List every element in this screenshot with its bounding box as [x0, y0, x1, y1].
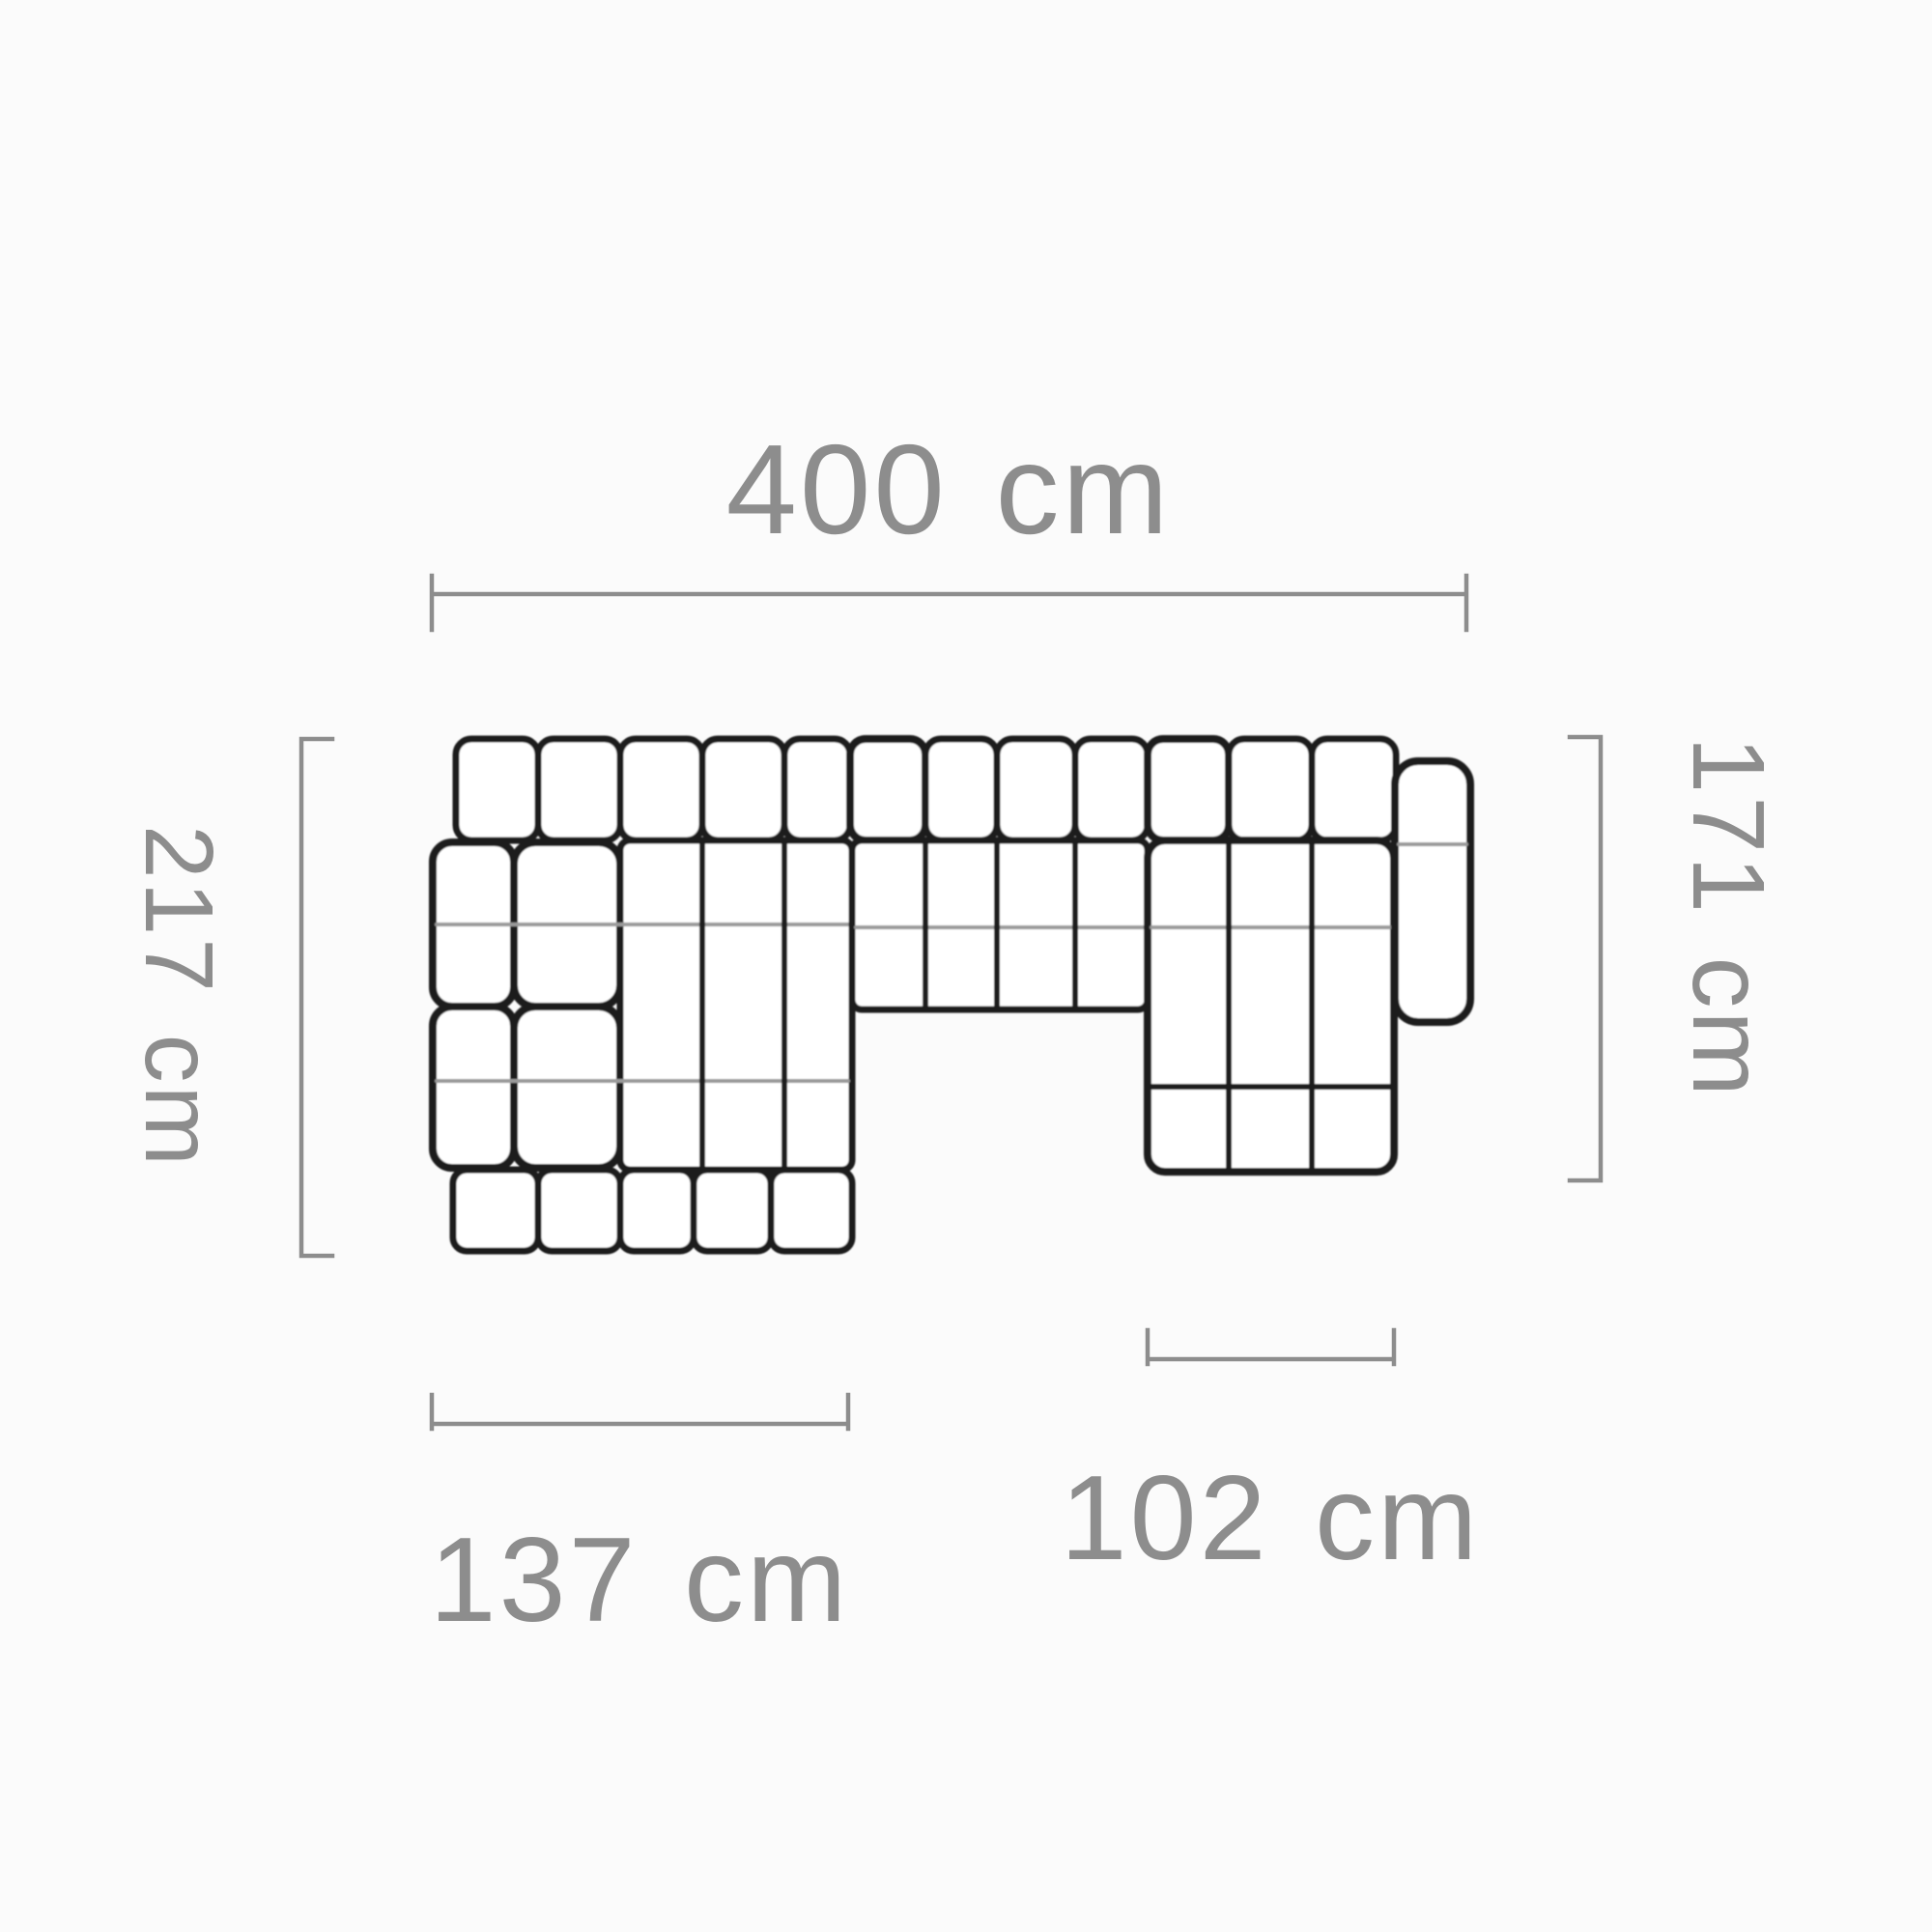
dim-left-depth-line	[301, 739, 332, 1256]
dim-left-depth-label: 217 cm	[125, 825, 233, 1169]
dim-left-chaise-line	[432, 1395, 848, 1429]
left-armrest-pillow	[433, 1007, 514, 1168]
back-cushion	[456, 739, 538, 840]
sofa-outline	[433, 739, 1470, 1251]
back-cushion-row	[456, 739, 1396, 840]
dim-left-depth: 217 cm	[125, 739, 332, 1256]
dim-total-width-label: 400 cm	[726, 418, 1172, 560]
back-cushion	[538, 739, 620, 840]
dim-right-chaise-width: 102 cm	[1061, 1330, 1481, 1585]
sofa-dimension-diagram: 400 cm 217 cm 171 cm 137 cm 102 cm	[0, 0, 1932, 1932]
back-cushion	[850, 739, 925, 840]
right-armrest	[1395, 761, 1470, 1022]
left-chaise	[433, 840, 852, 1251]
dim-right-depth: 171 cm	[1570, 736, 1785, 1180]
dim-left-chaise-label: 137 cm	[430, 1514, 850, 1647]
dim-right-depth-label: 171 cm	[1671, 736, 1785, 1099]
dim-total-width: 400 cm	[432, 418, 1466, 630]
back-cushion	[1312, 739, 1396, 840]
front-band-cell	[694, 1170, 771, 1251]
front-band-cell	[453, 1170, 538, 1251]
left-seat-panel	[620, 840, 852, 1170]
back-cushion	[1075, 739, 1148, 840]
right-chaise	[1148, 840, 1394, 1172]
back-cushion	[784, 739, 850, 840]
back-cushion	[702, 739, 784, 840]
dim-right-depth-line	[1570, 737, 1601, 1180]
front-band-cell	[620, 1170, 694, 1251]
diagram-page: 400 cm 217 cm 171 cm 137 cm 102 cm	[0, 0, 1932, 1932]
back-cushion	[1229, 739, 1312, 840]
dim-right-chaise-line	[1148, 1330, 1394, 1364]
back-cushion	[620, 739, 702, 840]
front-band-cell	[771, 1170, 852, 1251]
front-band-cell	[538, 1170, 620, 1251]
middle-seat	[852, 840, 1148, 1009]
dim-total-width-line	[432, 576, 1466, 630]
dimensions: 400 cm 217 cm 171 cm 137 cm 102 cm	[125, 418, 1785, 1647]
back-cushion	[997, 739, 1075, 840]
right-armrest-pillow	[1395, 761, 1470, 1022]
seat-pillow	[514, 1007, 620, 1168]
back-cushion	[925, 739, 997, 840]
right-chaise-panel	[1148, 840, 1394, 1172]
back-cushion	[1148, 739, 1229, 840]
dim-right-chaise-label: 102 cm	[1061, 1452, 1481, 1585]
dim-left-chaise-width: 137 cm	[430, 1395, 850, 1647]
